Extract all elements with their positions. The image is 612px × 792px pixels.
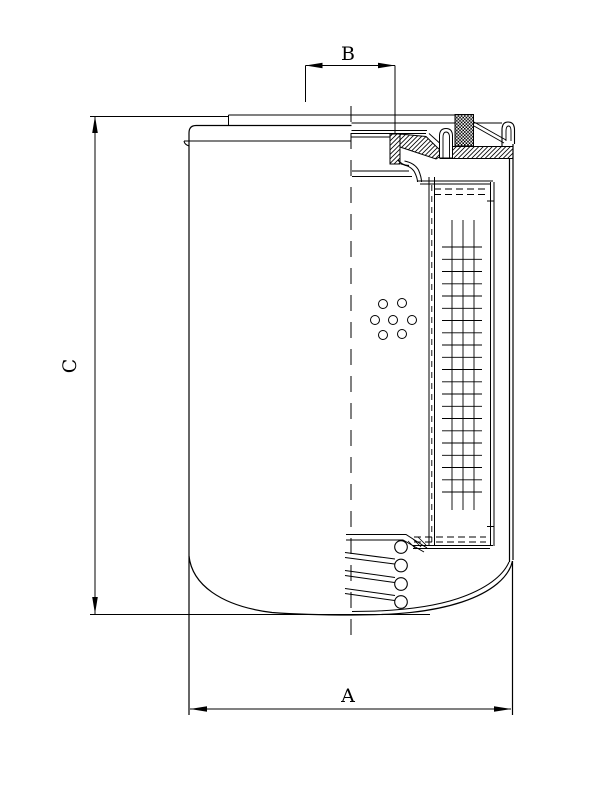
thread-boss-section [390,134,400,164]
background [0,0,612,792]
drawing-sheet: B C A [0,0,612,792]
filter-cross-section-drawing: B C A [0,0,612,792]
media-hatch [442,247,482,492]
dim-label-B: B [341,43,355,65]
retainer-clip-outer [440,129,453,159]
dim-label-A: A [340,685,355,707]
seal-gasket [455,115,474,147]
dim-label-C: C [59,359,81,374]
